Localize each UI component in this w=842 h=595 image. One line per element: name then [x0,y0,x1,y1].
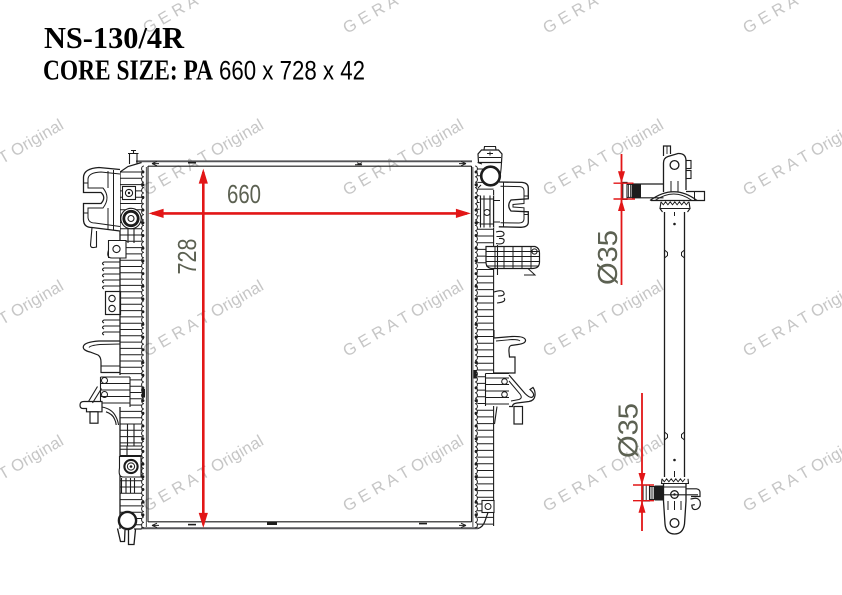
svg-text:660 x 728 x 42: 660 x 728 x 42 [219,56,365,86]
svg-text:660: 660 [227,181,261,209]
svg-text:CORE SIZE: PA: CORE SIZE: PA [43,55,213,87]
svg-text:NS-130/4R: NS-130/4R [44,20,185,55]
svg-text:Ø35: Ø35 [592,230,623,285]
svg-text:728: 728 [174,239,202,275]
svg-text:Ø35: Ø35 [613,403,644,458]
